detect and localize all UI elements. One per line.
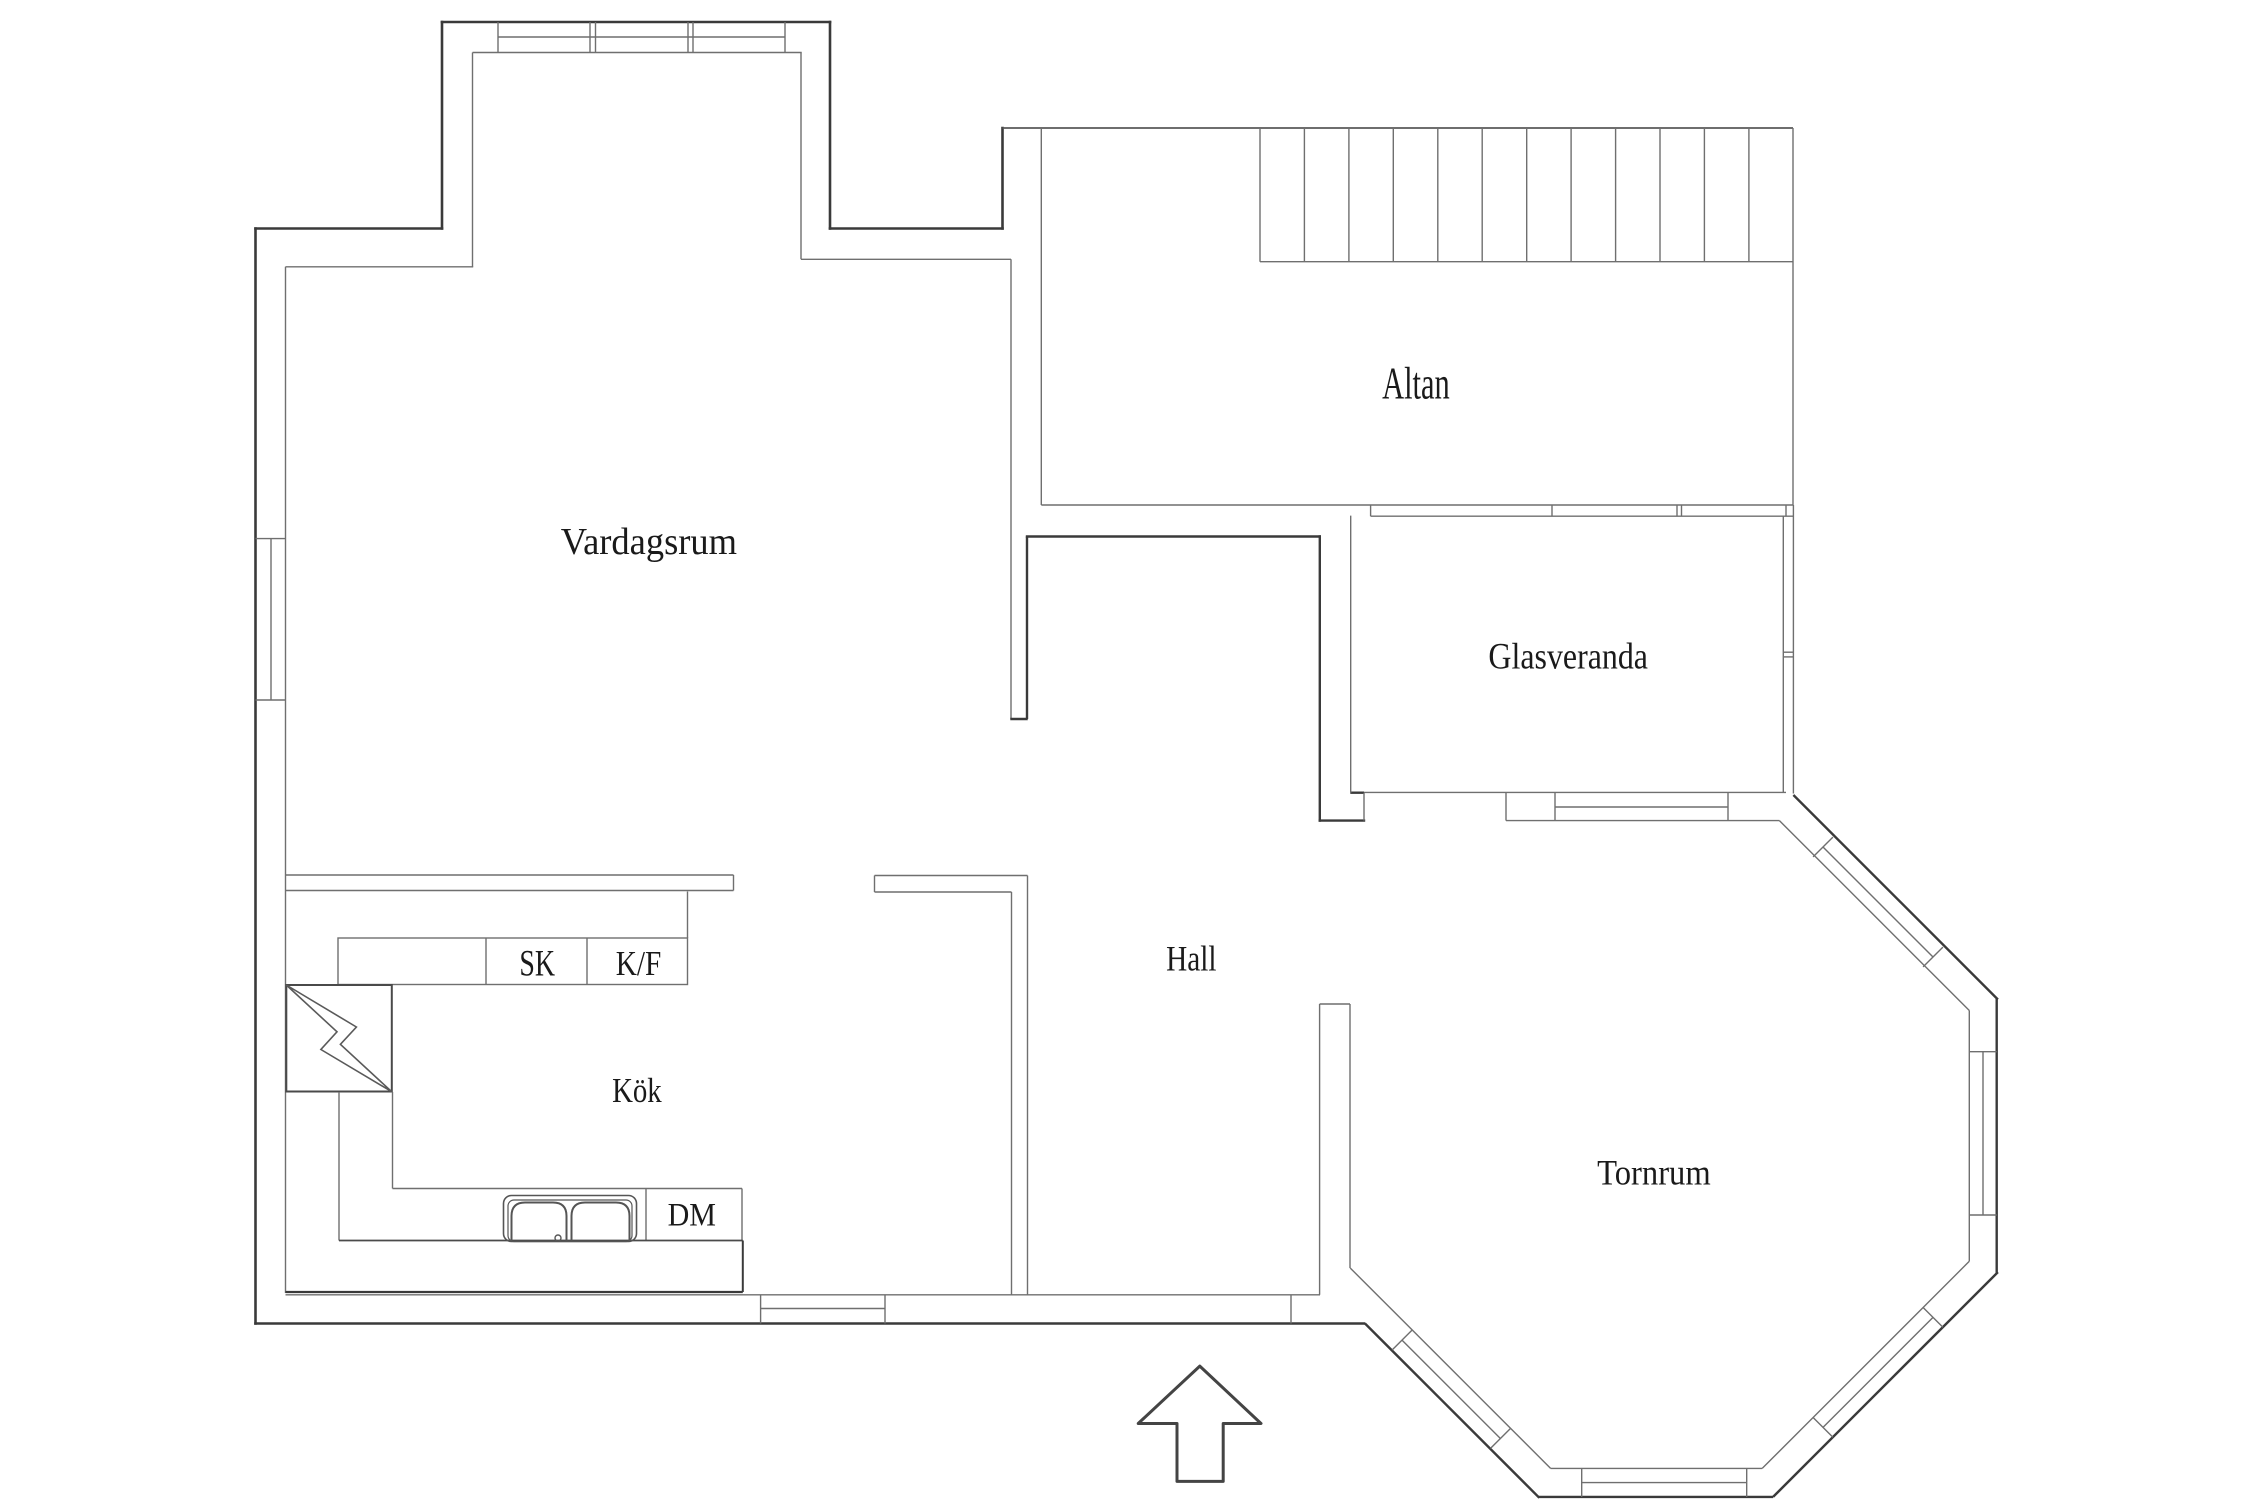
svg-text:SK: SK bbox=[519, 944, 555, 985]
svg-text:Tornrum: Tornrum bbox=[1597, 1153, 1711, 1193]
svg-text:K/F: K/F bbox=[616, 944, 662, 983]
svg-text:Hall: Hall bbox=[1166, 940, 1216, 980]
svg-text:Vardagsrum: Vardagsrum bbox=[561, 521, 737, 563]
svg-text:Altan: Altan bbox=[1382, 358, 1450, 409]
svg-text:DM: DM bbox=[668, 1196, 716, 1233]
svg-text:Glasveranda: Glasveranda bbox=[1488, 636, 1648, 677]
svg-text:Kök: Kök bbox=[612, 1070, 663, 1109]
